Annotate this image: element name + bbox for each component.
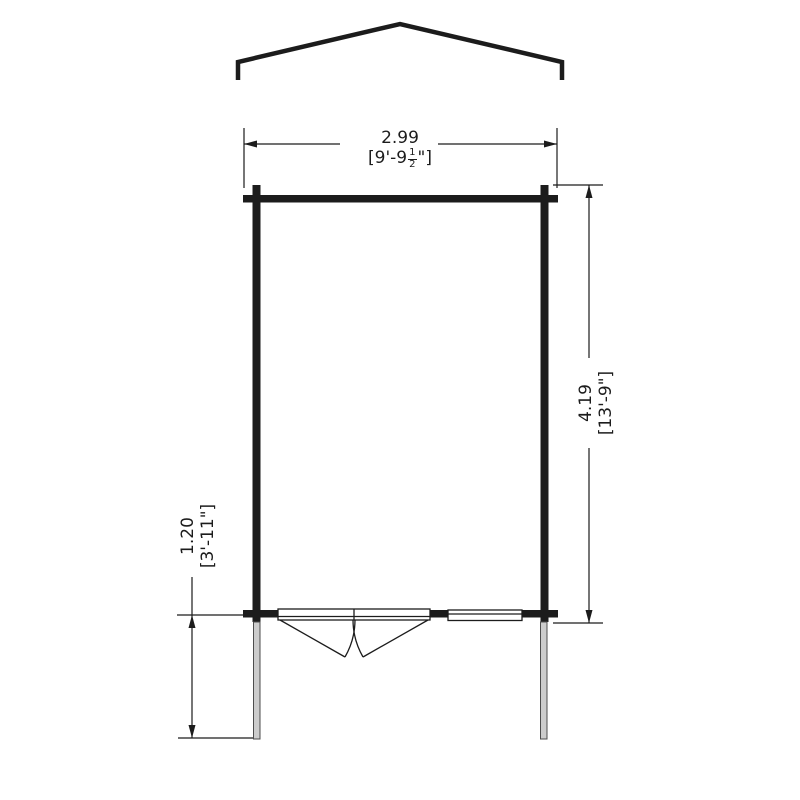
wall-left	[253, 185, 261, 622]
porch-imperial-value: [3'-11"]	[198, 466, 218, 606]
porch-dim-arrow-bottom	[189, 725, 196, 738]
post-right	[541, 622, 548, 739]
depth-dim-arrow-bottom	[586, 610, 593, 623]
half-inch-fraction: 12	[408, 148, 416, 170]
floor-plan-canvas: 2.99 [9'-912"] 4.19 [13'-9"] 1.20 [3'-11…	[0, 0, 800, 800]
porch-metric-value: 1.20	[178, 466, 198, 606]
depth-metric-value: 4.19	[576, 333, 596, 473]
wall-bottom-right-segment	[522, 610, 558, 618]
width-dim-arrow-right	[544, 141, 557, 148]
wall-bottom-left-segment	[243, 610, 278, 618]
porch-dim-arrow-top	[189, 615, 196, 628]
width-imperial-value: [9'-912"]	[300, 148, 500, 170]
depth-imperial-value: [13'-9"]	[596, 333, 616, 473]
depth-dim-arrow-top	[586, 185, 593, 198]
roof-outline	[238, 24, 562, 80]
width-dim-arrow-left	[244, 141, 257, 148]
wall-right	[541, 185, 549, 622]
depth-dimension-label: 4.19 [13'-9"]	[576, 333, 618, 473]
window	[448, 610, 522, 621]
post-left	[254, 622, 261, 739]
width-metric-value: 2.99	[300, 128, 500, 148]
wall-bottom-mid-segment	[428, 610, 448, 618]
plan-drawing	[0, 0, 800, 800]
wall-top	[243, 195, 558, 203]
width-dimension-label: 2.99 [9'-912"]	[300, 128, 500, 170]
door-leaf-right	[363, 620, 428, 657]
porch-dimension-label: 1.20 [3'-11"]	[178, 466, 220, 606]
door-leaf-left	[280, 620, 345, 657]
